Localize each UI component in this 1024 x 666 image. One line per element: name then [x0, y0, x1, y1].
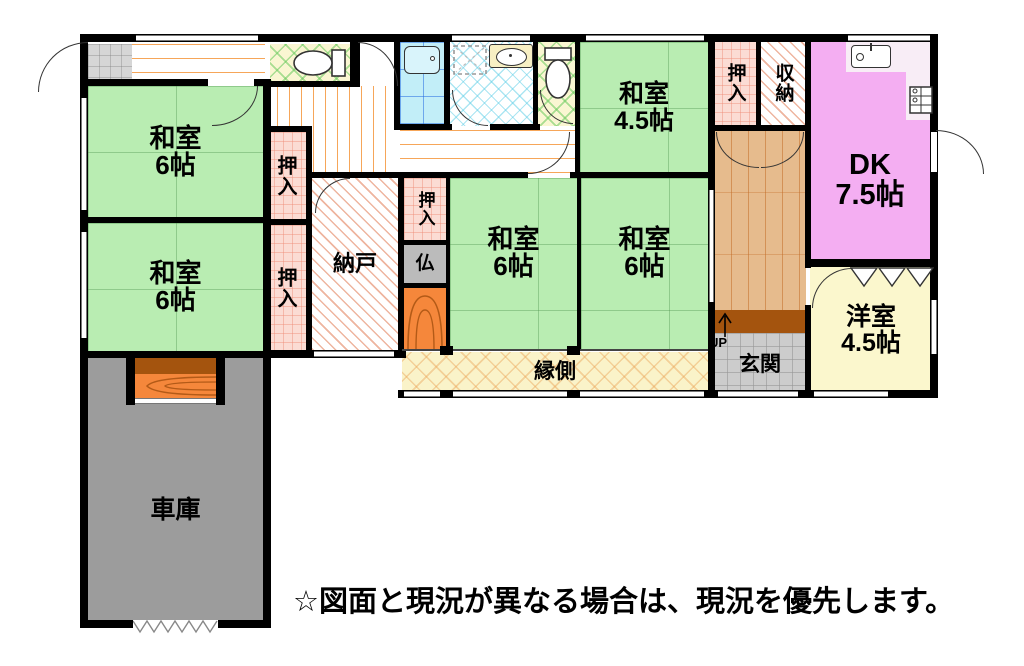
garage-shutter-icon [133, 620, 218, 634]
entry-porch [88, 44, 132, 82]
wall-washitsu-c-divider [577, 178, 581, 350]
window-nando-bottom [314, 351, 394, 357]
wall-bath-right [444, 40, 450, 130]
bathtub-drain [430, 56, 435, 61]
wall-shuno-dk-b [805, 305, 811, 398]
door-arc-dk-exterior [936, 130, 984, 174]
wall-toilet1-bottom [265, 81, 360, 87]
room-name: 押入 [271, 267, 300, 309]
room-name: 押入 [271, 155, 300, 197]
window-hall-left [709, 190, 714, 302]
label-oshiire-1: 押入 [265, 132, 306, 220]
window-left-washitsu-w [81, 232, 87, 338]
room-name: 押入 [722, 63, 749, 103]
door-arc-porch [38, 42, 88, 92]
butsuma-alcove [404, 245, 446, 283]
wall-garage-top [82, 351, 268, 358]
room-washitsu-45 [580, 42, 708, 173]
window-top-dk [848, 35, 930, 41]
washbasin [489, 44, 533, 68]
bay-post-left [126, 353, 135, 405]
door-genkan-entrance [718, 391, 798, 397]
wall-toilet2-right [575, 40, 580, 178]
wall-oshiire4-right [446, 175, 450, 352]
room-name: 収納 [770, 63, 797, 103]
label-stairs-up: UP [709, 335, 743, 353]
wall-butsuma-bottom [402, 283, 448, 288]
kitchen-sink [851, 45, 891, 68]
wall-wet-bottom-b [490, 124, 540, 130]
room-name: 押入 [413, 191, 438, 227]
wall-washitsu-divider [84, 217, 263, 223]
label-oshiire-2: 押入 [265, 225, 306, 350]
room-washitsu-c1 [450, 178, 577, 350]
window-top-washitsu45 [586, 35, 704, 41]
wall-garage-right [263, 350, 271, 628]
tokonoma-grain-icon [404, 288, 446, 349]
wall-oshiire4-bottom [402, 240, 448, 245]
label-shuno: 収納 [760, 40, 806, 126]
window-yoshitsu-bottom [814, 391, 888, 397]
room-washitsu-w [88, 223, 263, 351]
window-top-washroom [452, 35, 530, 41]
notice-text: ☆図面と現況が異なる場合は、現況を優先します。 [293, 578, 954, 620]
label-oshiire-3: 押入 [713, 40, 757, 126]
tokonoma-2 [135, 374, 216, 398]
corridor-top [132, 44, 265, 81]
bay-sill-window [135, 398, 216, 404]
floor-plan: 和室 6帖 和室 6帖 和室 6帖 和室 6帖 和室 4.5帖 DK 7.5帖 … [0, 0, 1024, 666]
label-oshiire-4: 押入 [404, 178, 446, 240]
veranda-engawa [402, 352, 708, 393]
door-arc-backdoor [358, 42, 398, 86]
wall-dk-bottom [805, 259, 938, 267]
toilet-1-icon [292, 48, 348, 78]
washer-space-icon [453, 45, 487, 75]
wall-wet-bottom-a [394, 124, 452, 130]
wall-oshiire-right [306, 128, 312, 352]
tokonoma-1 [404, 288, 446, 349]
room-washitsu-c2 [581, 178, 708, 350]
veranda-bottom-post [440, 390, 453, 398]
window-top-corridor [136, 35, 258, 41]
tokonoma-grain-icon [135, 374, 216, 398]
closet-triangles-icon [850, 267, 934, 288]
bathtub [404, 46, 440, 74]
window-left-washitsu-nw [81, 98, 87, 210]
bay-post-right [216, 353, 225, 405]
stairs-up-text: UP [709, 335, 727, 350]
wall-corridor-bottom-a [82, 79, 208, 86]
veranda-bottom-post2 [567, 390, 580, 398]
veranda-post-2 [567, 346, 580, 355]
window-right-yoshitsu [931, 300, 937, 354]
wall-washroom-right [533, 40, 538, 130]
wall-rooms-top-b [570, 172, 714, 178]
stove-icon [909, 86, 933, 114]
veranda-post-1 [440, 346, 453, 355]
